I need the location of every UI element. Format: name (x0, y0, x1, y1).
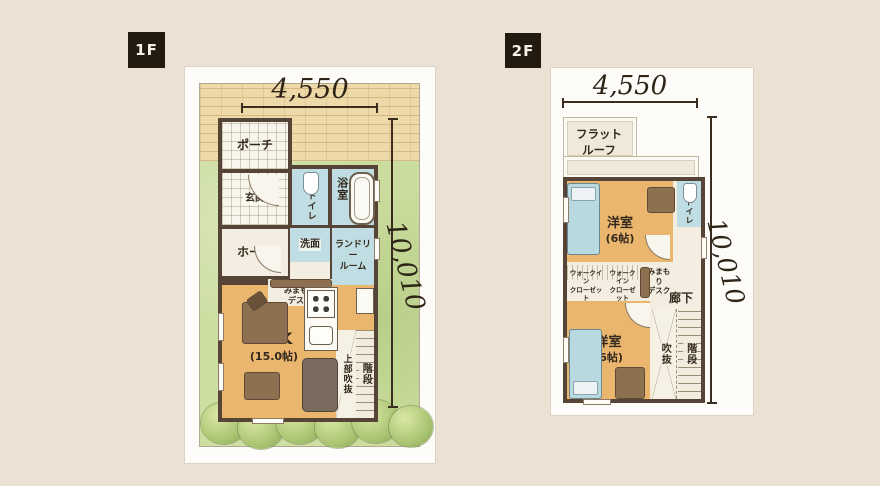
dim-width-2f: 4,550 (570, 71, 690, 101)
bush-icon (389, 406, 433, 447)
plan-1f: ポーチ トイレ 浴室 玄関 ホール 洗面 ランドリー ルーム みま (218, 118, 378, 422)
room-bedroom-a-label2: (6帖) (606, 232, 635, 246)
wic-a-label2: クローゼット (567, 286, 605, 302)
room-toilet-1f: トイレ (292, 169, 328, 225)
page: { "page": {"background": "#ebe2d4"}, "co… (0, 0, 880, 486)
floor-tag-2f-label: 2F (512, 42, 535, 60)
dim-height-2f: 10,010 (700, 209, 752, 313)
cabinet (356, 288, 374, 314)
corridor-label-group: 廊下 (661, 289, 701, 305)
room-toilet-2f: トイレ (677, 181, 701, 227)
toilet-icon (683, 183, 697, 203)
wic-b-label1: ウォークイン (607, 269, 638, 285)
sink-icon (309, 326, 333, 345)
room-ldk-label2: (15.0帖) (250, 348, 298, 364)
room-genkan: 玄関 (222, 173, 288, 225)
stairs-1f: 階段 (356, 330, 374, 418)
dim-width-1f: 4,550 (235, 74, 385, 105)
wic-b-label2: クローゼット (607, 286, 638, 302)
walk-in-closet-b: ウォークイン クローゼット (607, 265, 638, 298)
window (374, 238, 380, 260)
floorplan-card-2f: フラット ルーフ 洋室 (6帖) トイレ ウォークイン クローゼット ウォークイ… (551, 68, 753, 415)
flat-roof-label1: フラット (576, 126, 622, 142)
coffee-table (244, 372, 280, 400)
pillow (573, 381, 598, 395)
corridor-1f (290, 262, 330, 279)
dim-line-width-2f (563, 101, 697, 103)
desk-icon (640, 267, 650, 298)
window (583, 399, 611, 405)
stairs-2f-label: 階段 (683, 343, 696, 365)
floorplan-card-1f: ポーチ トイレ 浴室 玄関 ホール 洗面 ランドリー ルーム みま (185, 67, 435, 463)
flat-roof-label2: ルーフ (582, 142, 616, 158)
desk-icon (647, 187, 675, 213)
bed-icon (567, 183, 600, 255)
room-bath-label: 浴室 (335, 177, 349, 201)
upper-void: 上部吹抜 (336, 330, 357, 418)
plan-2f: 洋室 (6帖) トイレ ウォークイン クローゼット ウォークイン クローゼット … (563, 177, 705, 403)
floor-tag-2f: 2F (505, 33, 541, 68)
window (563, 337, 569, 363)
toilet-icon (303, 172, 319, 195)
sofa (302, 358, 338, 412)
bed-icon (569, 329, 602, 399)
window (218, 363, 224, 391)
pillow (571, 187, 596, 201)
upper-void-label: 上部吹抜 (340, 354, 351, 394)
corridor-label: 廊下 (669, 289, 693, 306)
stairs-1f-label: 階段 (359, 363, 372, 385)
flat-roof-label-group: フラット ルーフ (567, 124, 631, 160)
room-porch-label: ポーチ (237, 138, 273, 153)
window (218, 313, 224, 341)
room-toilet-1f-label: トイレ (304, 191, 315, 221)
floor-tag-1f-label: 1F (135, 41, 158, 59)
window (252, 418, 284, 424)
room-laundry-label2: ルーム (340, 262, 367, 273)
room-washroom: 洗面 (290, 228, 330, 262)
void-2f: 吹抜 (652, 309, 677, 399)
floor-tag-1f: 1F (128, 32, 165, 68)
desk-icon (615, 367, 645, 399)
void-2f-label: 吹抜 (658, 343, 671, 365)
room-washroom-label: 洗面 (299, 239, 321, 252)
dim-line-width-1f (242, 106, 377, 108)
window (374, 180, 380, 202)
room-bedroom-a-label1: 洋室 (607, 216, 633, 232)
stairs-2f: 階段 (678, 309, 701, 399)
dining-table (242, 302, 288, 344)
walk-in-closet-a: ウォークイン クローゼット (567, 265, 605, 298)
stove-icon (307, 290, 335, 318)
wic-a-label1: ウォークイン (567, 269, 605, 285)
room-bath: 浴室 (332, 169, 374, 225)
window (563, 197, 569, 223)
bathtub-icon (349, 172, 375, 225)
room-laundry-label1: ランドリー (332, 240, 374, 263)
room-porch: ポーチ (222, 122, 288, 169)
room-laundry: ランドリー ルーム (332, 228, 374, 285)
